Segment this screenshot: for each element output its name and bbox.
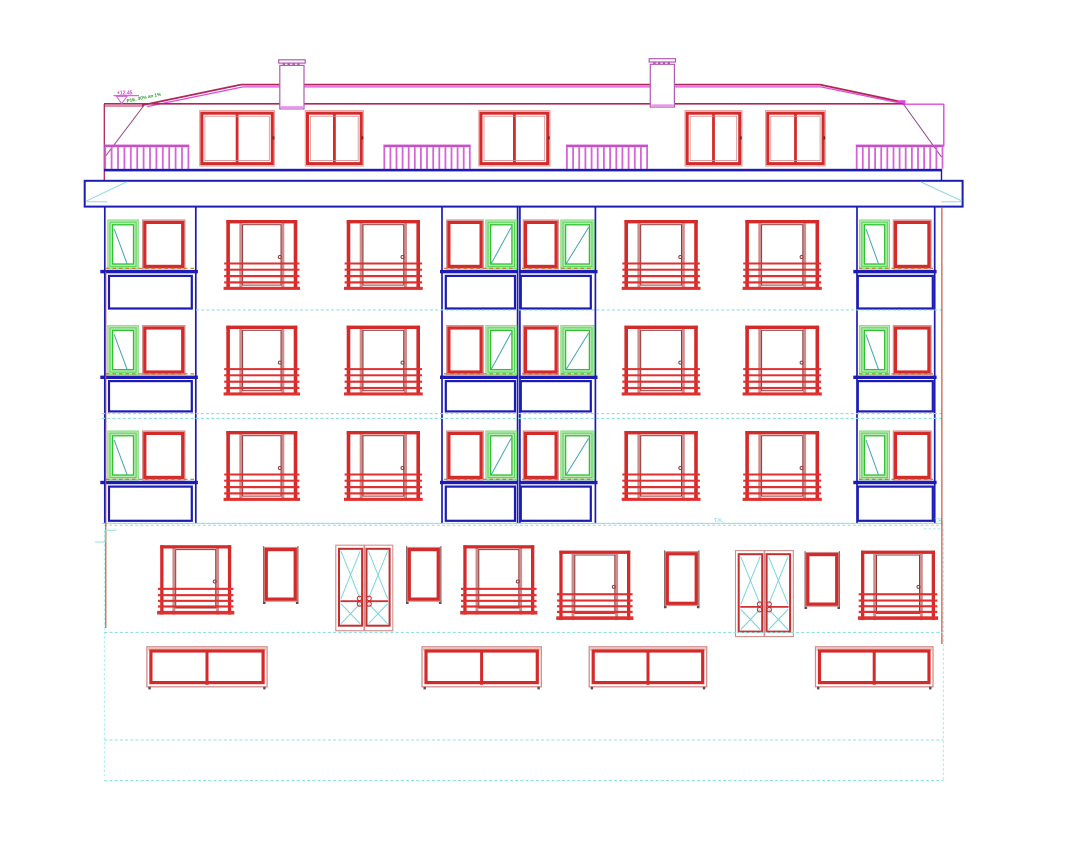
svg-text:T.R.: T.R. (934, 518, 944, 524)
svg-text:T.K.: T.K. (714, 518, 724, 524)
